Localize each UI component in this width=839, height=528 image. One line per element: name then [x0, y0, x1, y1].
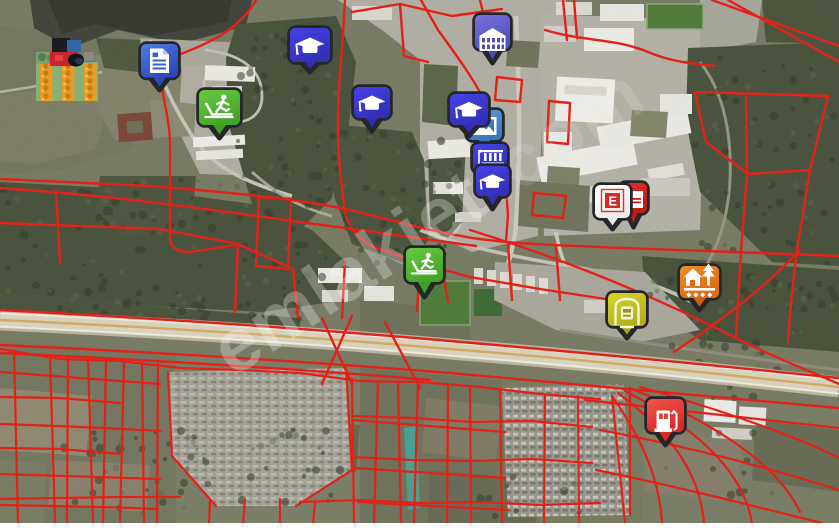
svg-text:E: E — [608, 193, 617, 208]
